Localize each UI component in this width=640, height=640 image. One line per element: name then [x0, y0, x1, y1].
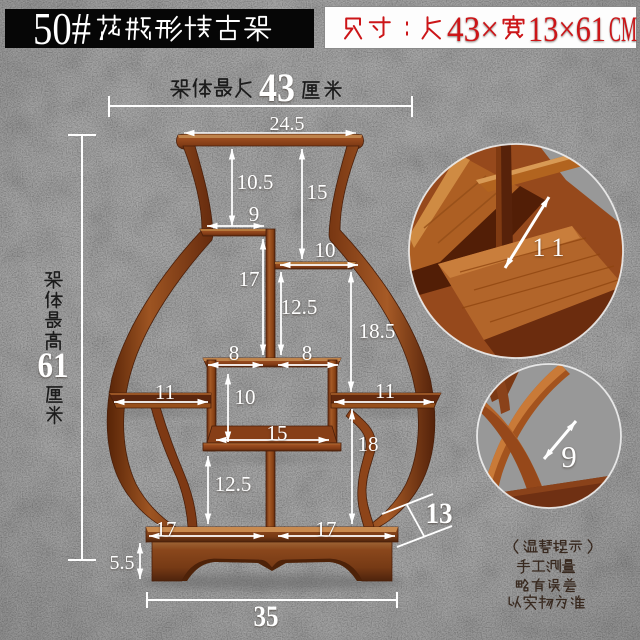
svg-text:11: 11: [155, 380, 175, 404]
svg-text:9: 9: [561, 439, 577, 474]
svg-text:43: 43: [259, 65, 295, 110]
svg-text:11: 11: [375, 379, 395, 403]
svg-text:17: 17: [156, 517, 177, 541]
svg-text:8: 8: [302, 341, 313, 365]
svg-text:10: 10: [235, 385, 256, 409]
svg-text:24.5: 24.5: [270, 113, 305, 135]
svg-text:10.5: 10.5: [237, 170, 274, 194]
svg-text:15: 15: [267, 421, 288, 445]
svg-text:18: 18: [358, 432, 379, 456]
svg-text:12.5: 12.5: [281, 295, 318, 319]
svg-text:11: 11: [532, 233, 571, 262]
svg-text:35: 35: [254, 600, 279, 633]
svg-text:43×: 43×: [447, 9, 499, 49]
svg-text:12.5: 12.5: [215, 472, 252, 496]
svg-text:9: 9: [249, 202, 260, 226]
svg-text:17: 17: [316, 517, 337, 541]
svg-text:50#: 50#: [33, 4, 91, 54]
svg-text:13×61: 13×61: [528, 9, 606, 49]
svg-text:5.5: 5.5: [110, 552, 135, 574]
svg-text:13: 13: [426, 497, 453, 530]
svg-text:61: 61: [38, 345, 69, 385]
svg-text:8: 8: [229, 341, 240, 365]
svg-text:CM: CM: [609, 9, 637, 49]
svg-text:15: 15: [307, 180, 328, 204]
svg-text:18.5: 18.5: [359, 319, 396, 343]
svg-text:17: 17: [239, 267, 260, 291]
svg-text:10: 10: [315, 238, 336, 262]
